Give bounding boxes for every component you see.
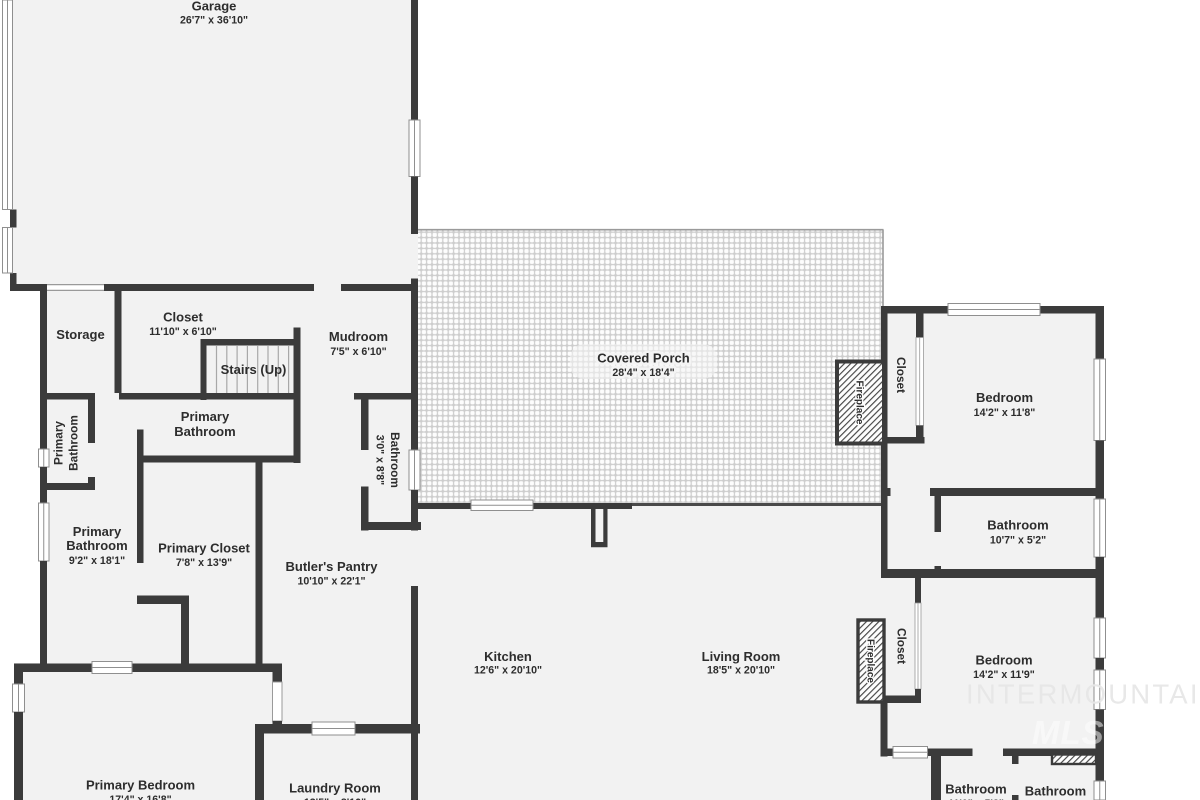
svg-text:Primary: Primary [73,524,122,539]
svg-text:Covered Porch: Covered Porch [597,351,690,366]
svg-text:Closet: Closet [894,357,908,393]
svg-text:Primary Closet: Primary Closet [158,541,250,556]
svg-text:26'7" x 36'10": 26'7" x 36'10" [180,15,248,27]
svg-text:Bathroom: Bathroom [945,782,1006,797]
svg-text:Bathroom: Bathroom [66,538,127,553]
svg-text:Fireplace: Fireplace [865,639,876,683]
svg-text:Storage: Storage [56,327,104,342]
svg-text:Primary: Primary [52,421,66,465]
svg-text:10'7" x 5'2": 10'7" x 5'2" [990,535,1046,547]
svg-text:12'6" x 20'10": 12'6" x 20'10" [474,665,542,677]
svg-text:Kitchen: Kitchen [484,649,532,664]
svg-text:INTERMOUNTAIN: INTERMOUNTAIN [966,679,1200,710]
svg-text:11'10" x 6'10": 11'10" x 6'10" [149,326,217,338]
svg-text:Garage: Garage [192,0,237,14]
svg-text:17'4" x 16'8": 17'4" x 16'8" [109,794,171,800]
svg-text:Bathroom: Bathroom [67,415,81,471]
svg-text:MLS: MLS [1032,714,1105,751]
svg-text:Closet: Closet [163,310,203,325]
svg-text:Bathroom: Bathroom [174,424,235,439]
svg-text:Bathroom: Bathroom [1025,784,1086,799]
svg-text:Butler's Pantry: Butler's Pantry [286,559,379,574]
svg-text:10'10" x 22'1": 10'10" x 22'1" [297,576,365,588]
svg-text:Bedroom: Bedroom [976,390,1033,405]
svg-text:Stairs (Up): Stairs (Up) [221,362,287,377]
svg-text:Bathroom: Bathroom [987,518,1048,533]
svg-text:7'8" x 13'9": 7'8" x 13'9" [176,557,232,569]
svg-text:3'0" x 8'8": 3'0" x 8'8" [374,435,386,485]
svg-text:18'5" x 20'10": 18'5" x 20'10" [707,665,775,677]
svg-text:Closet: Closet [895,628,909,664]
svg-text:Living Room: Living Room [702,649,781,664]
svg-text:14'2" x 11'8": 14'2" x 11'8" [974,407,1036,419]
svg-text:Primary: Primary [181,409,230,424]
svg-text:28'4" x 18'4": 28'4" x 18'4" [612,367,674,379]
svg-text:7'5" x 6'10": 7'5" x 6'10" [330,346,386,358]
svg-text:Primary Bedroom: Primary Bedroom [86,778,195,793]
svg-text:Bathroom: Bathroom [388,432,402,488]
svg-text:9'2" x 18'1": 9'2" x 18'1" [69,555,125,567]
svg-text:Laundry Room: Laundry Room [289,781,381,796]
svg-text:Mudroom: Mudroom [329,329,388,344]
svg-text:Fireplace: Fireplace [854,381,865,425]
svg-text:Bedroom: Bedroom [975,653,1032,668]
